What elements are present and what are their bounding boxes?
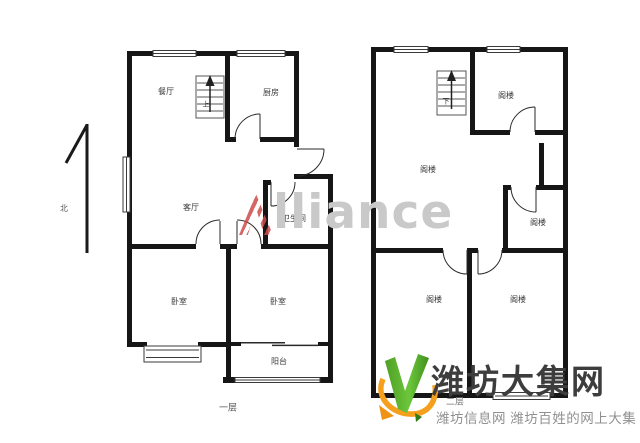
site-logo-subtitle: 潍坊信息网 潍坊百姓的网上大集	[436, 407, 636, 427]
room-label-bedroom-right: 卧室	[270, 298, 286, 306]
stairs-direction-floor1: 上	[203, 102, 210, 109]
floor2-stairs	[437, 70, 466, 115]
north-label: 北	[60, 205, 68, 213]
room-label-attic-bottom-right: 阁楼	[510, 296, 526, 304]
room-label-attic-top-right: 阁楼	[498, 92, 514, 100]
floor1-stairs	[196, 75, 224, 118]
room-label-attic-bottom-left: 阁楼	[426, 296, 442, 304]
room-label-attic-main: 阁楼	[420, 166, 436, 174]
site-logo-title: 潍坊大集网	[431, 362, 606, 402]
floor1-doors	[196, 114, 324, 345]
room-label-attic-mid-right: 阁楼	[530, 219, 546, 227]
room-label-bedroom-left: 卧室	[171, 298, 187, 306]
stairs-direction-floor2: 下	[443, 99, 450, 106]
floor1-caption: 一层	[219, 404, 237, 413]
room-label-living: 客厅	[183, 204, 199, 212]
site-logo-v-icon	[377, 351, 439, 425]
room-label-kitchen: 厨房	[263, 89, 279, 97]
north-arrow-icon	[66, 124, 87, 253]
room-label-balcony: 阳台	[271, 358, 287, 366]
floor-plan-image: 餐厅 厨房 客厅 卫生间 卧室 卧室 阳台 上 一层 阁楼 阁楼 阁楼 阁楼 阁…	[0, 0, 640, 443]
room-label-bathroom: 卫生间	[282, 215, 306, 223]
room-label-dining: 餐厅	[158, 88, 174, 96]
